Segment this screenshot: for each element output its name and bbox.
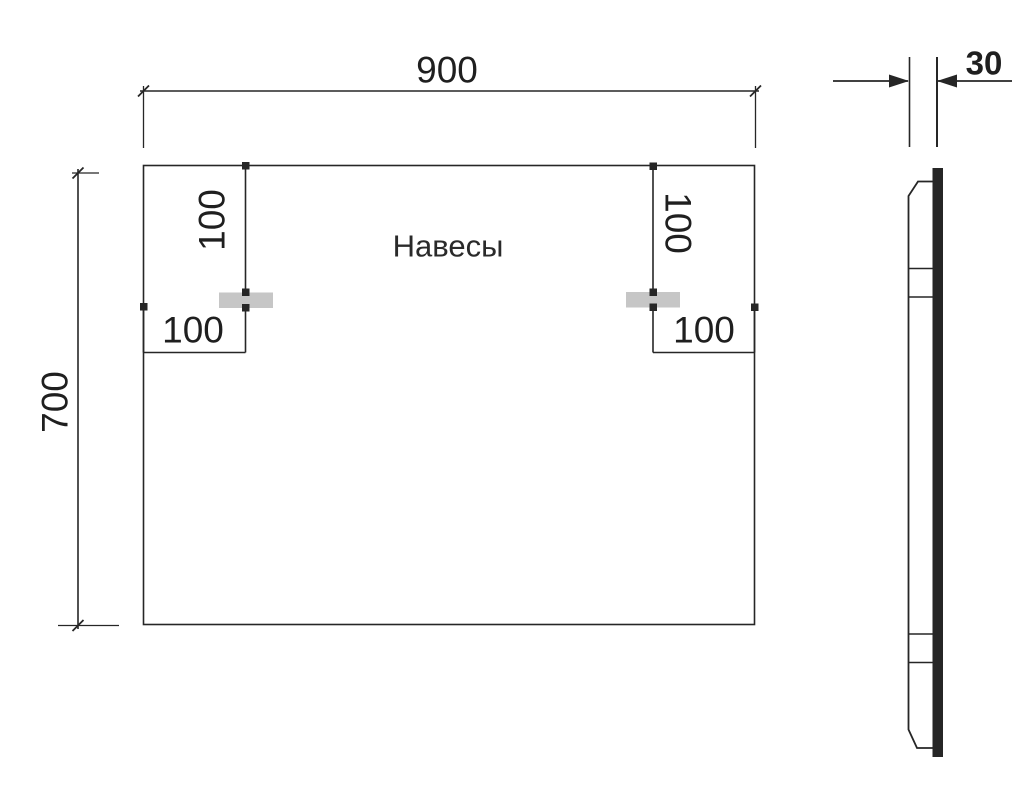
- filled-marks-group: [140, 75, 957, 758]
- right-hanger-top-edge-marker: [650, 163, 658, 171]
- hangers-label: Навесы: [393, 231, 504, 262]
- thickness-arrow-left-icon: [889, 75, 909, 88]
- left-hanger-top-offset-label: 100: [194, 189, 231, 251]
- left-hanger-lower-marker: [242, 304, 250, 312]
- thickness-dim-label: 30: [966, 47, 1003, 80]
- drawing-linework: [0, 0, 1036, 785]
- technical-drawing-canvas: 900 700 100 100 100 100 30 Навесы: [0, 0, 1036, 785]
- right-hanger-lower-marker: [650, 304, 658, 312]
- hanger-plates-group: [219, 292, 680, 308]
- left-hanger-top-edge-marker: [242, 162, 250, 170]
- right-edge-marker: [751, 304, 759, 312]
- height-dim-label: 700: [37, 371, 74, 433]
- left-hanger-side-offset-label: 100: [162, 312, 224, 349]
- right-hanger-upper-marker: [650, 289, 658, 297]
- left-edge-marker: [140, 303, 148, 311]
- linework-group: [58, 57, 1012, 748]
- left-hanger-upper-marker: [242, 289, 250, 297]
- right-hanger-side-offset-label: 100: [673, 312, 735, 349]
- right-hanger-top-offset-label: 100: [660, 192, 697, 254]
- width-dim-label: 900: [416, 52, 478, 89]
- side-view-back-bar: [933, 168, 944, 757]
- thickness-arrow-right-icon: [937, 75, 957, 88]
